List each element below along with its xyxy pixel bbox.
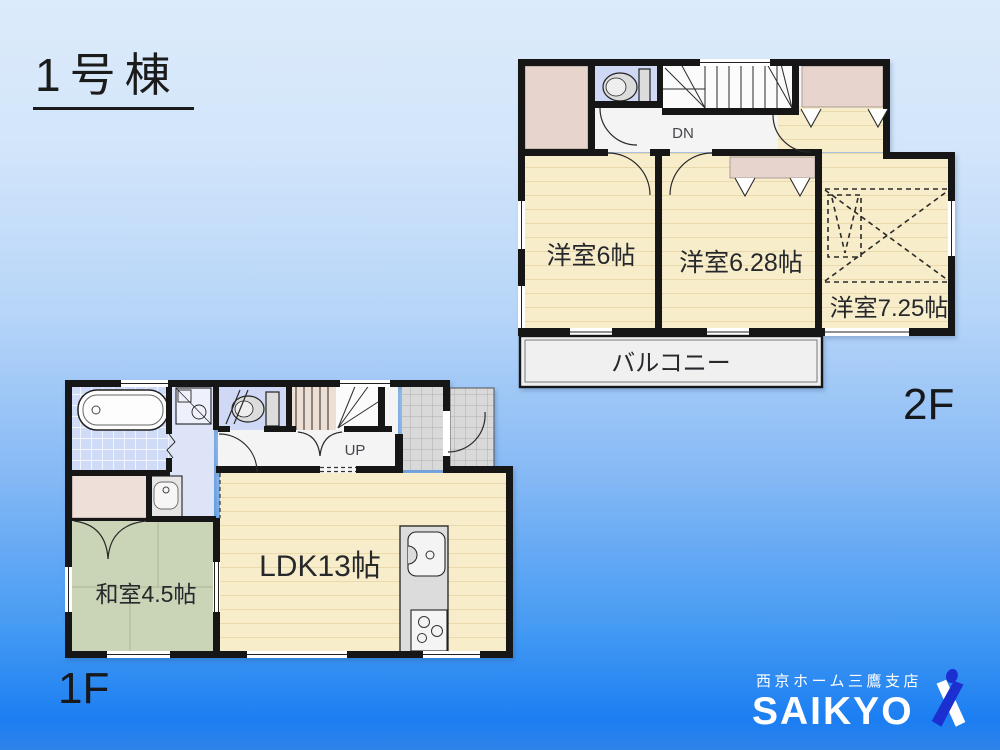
brand-name: SAIKYO xyxy=(752,692,922,731)
floorplan-sheet: 1号棟 xyxy=(0,0,1000,750)
closet-middle-room xyxy=(730,157,815,178)
room-middle-label: 洋室6.28帖 xyxy=(679,249,803,277)
branch-name: 西京ホーム三鷹支店 xyxy=(756,670,922,691)
bathtub xyxy=(78,390,168,430)
washitsu-label: 和室4.5帖 xyxy=(96,581,197,607)
floor-1-label: 1F xyxy=(58,664,109,714)
stairs-dn-label: DN xyxy=(672,125,694,142)
staircase-1f xyxy=(288,384,378,430)
washing-machine-pan xyxy=(176,388,211,424)
balcony-label: バルコニー xyxy=(611,350,731,377)
stairs-up-label: UP xyxy=(345,442,366,459)
genkan-tile xyxy=(402,386,444,470)
closet-northeast xyxy=(802,66,883,107)
staircase-2f xyxy=(662,64,792,108)
room-west-floor xyxy=(525,153,655,329)
page-title: 1号棟 xyxy=(33,50,194,110)
floor-plan-2f: バルコニー 洋室6帖 洋室6.28帖 洋室7.25帖 DN xyxy=(515,56,967,396)
stove xyxy=(411,610,447,651)
kitchen-counter xyxy=(400,526,448,654)
ldk-label: LDK13帖 xyxy=(259,550,381,583)
vanity-sink xyxy=(150,476,182,517)
company-logo-text: 西京ホーム三鷹支店 SAIKYO xyxy=(752,666,922,731)
porch-tile xyxy=(450,388,494,468)
closet-northwest xyxy=(525,66,588,149)
room-east-label: 洋室7.25帖 xyxy=(830,295,949,322)
floor-plan-1f: 和室4.5帖 LDK13帖 UP xyxy=(58,372,528,672)
room-west-label: 洋室6帖 xyxy=(547,242,636,270)
balcony: バルコニー xyxy=(520,336,822,387)
saikyo-person-icon xyxy=(926,668,974,728)
company-logo: 西京ホーム三鷹支店 SAIKYO xyxy=(752,666,974,731)
floor-2-label: 2F xyxy=(903,380,954,430)
closet-1f xyxy=(72,474,148,518)
